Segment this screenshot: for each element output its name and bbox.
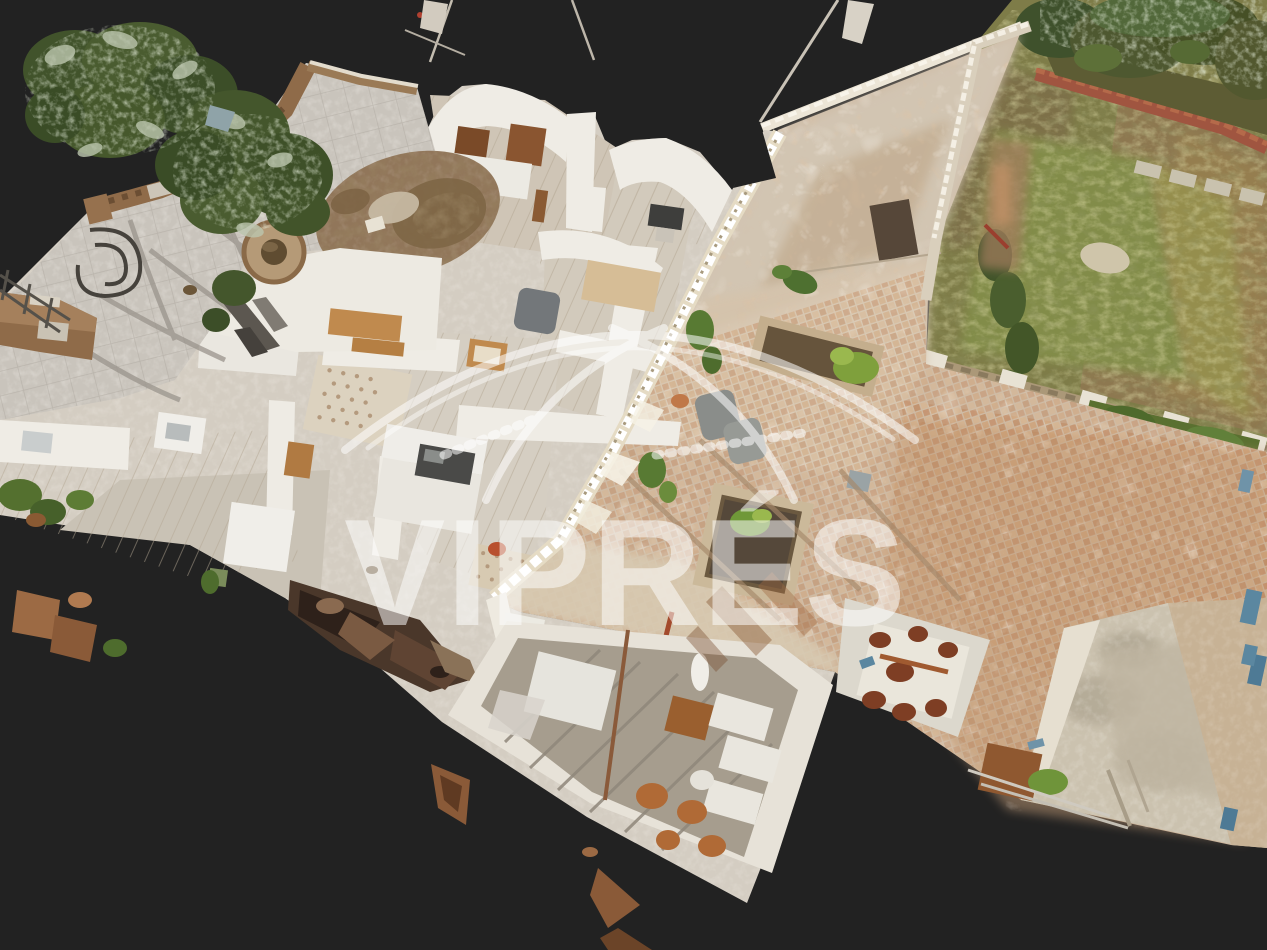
svg-text:VIPRÉS: VIPRÉS	[344, 488, 912, 658]
